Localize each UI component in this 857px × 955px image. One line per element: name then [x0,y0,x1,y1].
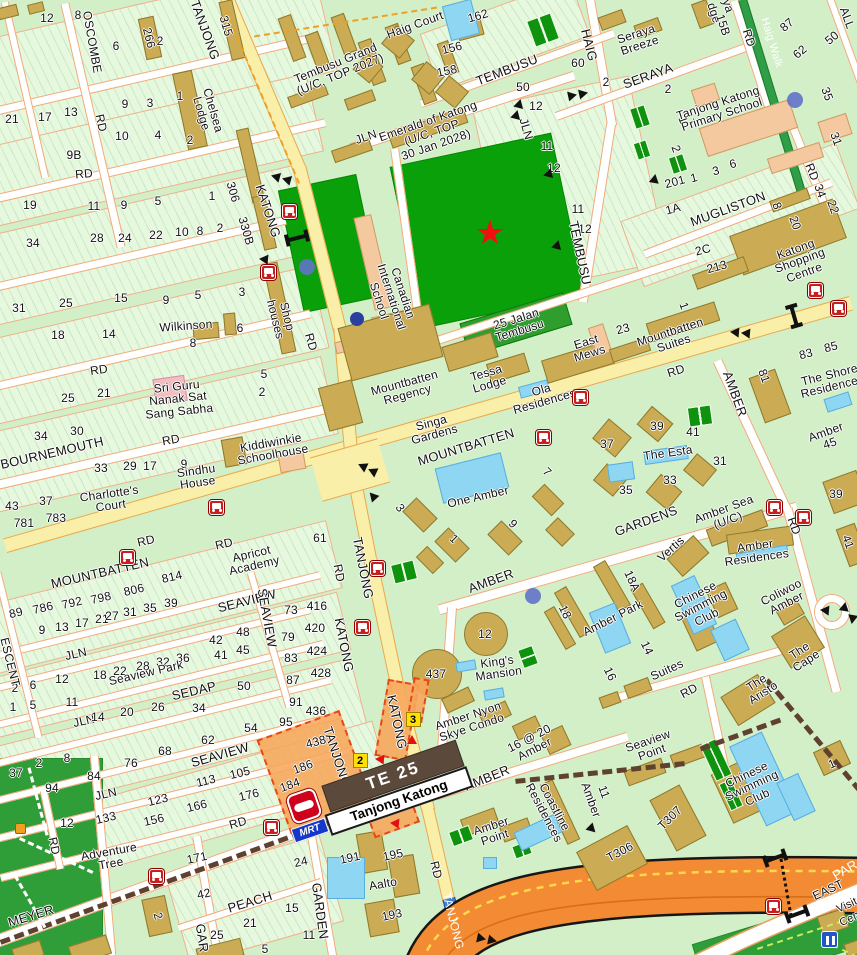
map-label: HAIG [579,28,600,63]
school-building [698,99,798,157]
building [141,895,172,937]
map-label: Charlotte's Court [79,484,141,517]
map-label: 9 [122,98,129,110]
map-label: 37 [9,767,23,779]
bus-stop-icon[interactable] [808,283,823,298]
building [305,31,332,73]
one-way-arrow-icon [551,234,564,250]
building [667,535,710,577]
map-label: 11 [541,140,554,152]
building [545,517,575,547]
map-label: 171 [186,850,209,866]
building [609,337,651,363]
building [836,523,857,567]
mrt-exit-badge[interactable]: 3 [406,712,421,727]
dashed-line [779,859,792,917]
building [278,14,307,62]
map-label: SEAVIEW [216,587,277,615]
map-label: RD [803,161,821,182]
map-label: 22 [113,665,127,677]
map-label: 133 [95,810,118,827]
building [540,725,571,755]
map-label: SEDAP [171,679,218,702]
map-label: 83 [284,652,298,664]
building [344,89,376,111]
map-label: 12 [529,100,543,112]
map-label: 31 [123,606,137,618]
map-label: 11 [303,929,316,941]
map-label: 428 [311,667,332,679]
map-label: Amber [579,781,603,819]
map-label: 17 [38,111,52,123]
map-label: JLN [94,785,118,802]
map-label: 3 [711,164,721,178]
map-label: ALL [837,6,856,31]
map-label: 91 [289,696,303,708]
map-label: 12 [578,223,592,235]
map-label: 11 [572,203,585,215]
map-label: RD [161,432,181,447]
map-label: 34 [26,237,40,249]
map-label: OSCOMBE [80,10,103,74]
mrt-exit-badge[interactable]: 2 [353,753,368,768]
map-label: ESCENT [0,636,22,687]
map-label: RD [89,363,108,378]
map-label: 2 [36,757,43,769]
one-way-arrow-icon [385,817,400,828]
map-label: 1 [676,115,690,126]
map-label: 3 [239,286,246,298]
building [388,854,421,898]
swimming-pool [589,602,631,653]
map-label: 42 [196,886,212,901]
map-label: 156 [143,812,166,829]
temple-building [152,375,187,405]
map-label: 416 [307,600,328,612]
swimming-pool [643,445,689,465]
map-label: 806 [123,582,146,599]
building [630,583,665,630]
map-label: 6 [728,157,738,171]
map-label: 37 [39,495,53,507]
map-label: 34 [192,702,206,714]
one-way-arrow-icon [254,253,269,264]
map-label: 14 [91,711,105,723]
one-way-arrow-icon [586,823,603,840]
map-label: 32 [156,656,170,668]
map-label: SEAVIEW [255,587,279,648]
playground-icon [15,823,26,834]
building [402,497,437,532]
map-label: 31 [12,302,26,314]
building [192,322,219,340]
map-label: 28 [90,232,104,244]
map-label: 9 [121,199,128,211]
map-label: 33 [94,462,108,474]
map-label: RD [136,533,156,549]
bus-stop-icon[interactable] [355,620,370,635]
map-label: 23 [615,321,632,337]
map-label: 11 [88,200,101,212]
map-label: 13 [64,106,78,118]
map-label: KATONG [332,617,356,673]
map-label: 12 [60,817,74,829]
map-label: RD [303,332,320,352]
map-label: 29 [123,460,137,472]
map-label: 24 [118,232,132,244]
map-label: 9B [66,149,81,161]
map-label: GARDENS [613,503,679,538]
bus-stop-icon[interactable] [120,550,135,565]
building [597,9,626,31]
swimming-pool [823,391,852,412]
bus-stop-icon[interactable] [264,820,279,835]
map-label: 20 [120,706,134,718]
map-label: 25 Jalan Tembusu [490,306,545,344]
map-label: 5 [30,699,37,711]
one-way-arrow-icon [543,162,556,178]
swimming-pool [483,687,504,700]
map-label: 798 [90,590,113,607]
map-label: SERAYA [621,61,675,91]
sports-court [687,404,714,427]
map-label: 15B [714,13,733,38]
building [646,474,683,510]
building [749,369,792,424]
map-label: 14 [638,639,655,657]
map-label: 105 [228,764,251,781]
map-label: 36 [176,652,190,664]
map-label: 12 [40,12,54,24]
map-label: 330B [236,215,256,246]
map-label: 201 [663,173,686,190]
map-canvas[interactable]: TE 25 Tanjong Katong MRT 12862OSCOMBERD2… [0,0,857,955]
building [317,379,362,432]
map-label: 27 [105,610,119,622]
swimming-pool [671,575,717,635]
bus-stop-icon[interactable] [149,869,164,884]
map-label: 35 [143,602,157,614]
sports-court [526,12,560,47]
bus-stop-icon[interactable] [370,561,385,576]
map-label: 792 [61,595,84,612]
map-label: 21 [97,387,111,399]
building [592,418,632,457]
school-building [354,214,393,311]
map-label: 11 [596,784,612,800]
map-label: 176 [237,786,260,803]
map-label: 420 [305,622,326,634]
bus-stop-icon[interactable] [536,430,551,445]
map-label: MOUNTBATTEN [50,555,151,591]
dashed-line [14,875,47,928]
building [646,301,721,342]
map-label: 21 [95,613,109,625]
map-label: EAST [811,878,845,903]
map-label: 89 [8,605,24,620]
bus-stop-icon[interactable] [261,265,276,280]
building [623,677,652,699]
map-label: RD [666,362,687,379]
map-label: 1 [689,171,699,185]
building [623,758,666,787]
bus-stop-icon[interactable] [796,510,811,525]
map-label: 22 [149,229,163,241]
map-label: 73 [284,604,298,616]
map-label: 306 [224,180,242,203]
map-label: 31 [713,455,727,467]
map-label: 25 [59,297,73,309]
map-label: 17 [75,617,89,629]
map-label: 87 [286,674,300,686]
building [251,194,276,251]
map-label: 9 [163,294,170,306]
map-label: 62 [201,734,215,746]
bus-stop-icon[interactable] [282,204,297,219]
map-label: 10 [175,226,189,238]
map-label: 21 [5,113,19,125]
map-label: 50 [237,680,251,692]
map-label: 2 [603,76,610,88]
map-label: King's Mansion [473,652,523,683]
overpass-icon [789,305,799,327]
map-label: PAR [830,858,857,883]
map-label: 1 [10,701,17,713]
map-label: TEMBUSU [567,220,594,286]
map-label: RD [75,167,94,181]
map-label: 5 [262,943,269,955]
map-label: 24 [293,854,309,869]
building [416,546,444,574]
school-building [278,451,307,473]
carpark-icon[interactable] [525,588,541,604]
dashed-line [27,767,48,835]
map-label: 15 [114,292,128,304]
sports-court [629,104,651,130]
map-label: 43 [5,500,19,512]
map-label: 87 [778,16,797,34]
swimming-pool [435,452,510,503]
map-label: Suites [649,657,686,682]
map-label: JLN [517,117,535,142]
map-label: 41 [214,649,228,661]
map-label: 2 [259,386,266,398]
map-label: 5 [155,195,162,207]
one-way-arrow-icon [846,614,857,630]
map-label: TEMBUSU [474,52,539,88]
dashed-line [11,833,94,874]
map-label: 94 [45,782,59,794]
map-label: 76 [124,757,138,769]
map-label: 3 [147,97,154,109]
map-label: SEAVIEW [189,740,250,769]
map-label: 6 [113,40,120,52]
building [235,127,265,203]
map-label: 54 [244,722,258,734]
building [512,715,542,740]
map-label: 14 [102,328,116,340]
building [0,4,19,20]
map-label: 21 [243,917,257,929]
map-label: 6 [237,322,244,334]
building [138,16,162,60]
building [599,691,622,709]
map-label: 62 [791,43,810,61]
one-way-arrow-icon [815,604,830,615]
carpark-icon[interactable] [299,259,315,275]
map-label: 8 [75,9,82,21]
map-label: Amber 45 [807,420,850,456]
map-label: Singa Gardens [407,411,459,447]
building [388,107,469,148]
one-way-arrow-icon [407,730,417,744]
map-label: 9 [181,458,188,470]
building [691,256,748,290]
map-label: Mountbatten Regency [369,368,442,410]
building [221,436,248,467]
one-way-arrow-icon [276,172,292,185]
map-label: 18 [93,669,107,681]
map-label: 5 [261,368,268,380]
building [68,934,112,955]
map-label: 1A [664,201,682,217]
map-label: 35 [819,85,835,102]
building [437,40,460,76]
building [532,484,565,517]
one-way-arrow-icon [736,327,751,338]
building [649,784,706,851]
map-label: Apricot Academy [225,542,281,578]
bus-stop-icon[interactable] [767,500,782,515]
map-label: 10 [115,130,129,142]
swimming-pool [518,379,550,398]
map-label: 17 [143,460,157,472]
map-label: 786 [32,600,55,617]
school-building [766,142,823,174]
one-way-arrow-icon [476,932,492,945]
school-building [817,113,852,143]
sports-court [668,153,689,175]
building [196,938,245,955]
building [576,825,648,891]
one-way-arrow-icon [567,89,583,102]
map-label: 34 [34,430,48,442]
carpark-icon[interactable] [787,92,803,108]
map-label: 60 [571,57,585,69]
map-label: 8 [197,225,204,237]
one-way-arrow-icon [370,753,385,764]
map-label: 5 [195,289,202,301]
building [331,137,373,162]
building [822,470,857,514]
building [11,940,44,955]
map-label: 79 [281,631,295,643]
bus-stop-icon[interactable] [573,390,588,405]
map-label: ya [720,0,736,14]
building [637,406,674,442]
map-label: Sindhu House [176,462,218,492]
sports-court [633,139,652,160]
map-label: 25 [210,929,224,941]
map-label: 8 [64,752,71,764]
map-label: 783 [46,512,67,524]
map-label: 11 [66,696,79,708]
building [223,313,237,336]
map-label: 2 [217,222,224,234]
swimming-pool [455,659,476,672]
building [364,899,399,938]
map-label: 61 [313,532,327,544]
map-label: 68 [158,745,172,757]
map-label: 814 [161,569,184,586]
building [172,70,208,150]
map-label: 45 [236,644,250,656]
map-label: RD [214,536,234,552]
map-label: AMBER [466,567,515,596]
sports-court [517,645,539,669]
map-label: 2 [12,682,19,694]
map-label: 28 [136,660,150,672]
map-label: RD [428,860,444,880]
swimming-pool [710,619,750,662]
info-point-icon[interactable] [350,312,364,326]
map-label: BOURNEMOUTH [0,435,105,472]
map-label: 166 [185,797,208,814]
map-label: 83 [798,346,814,361]
map-label: 424 [307,645,328,657]
map-label: 2C [694,242,712,258]
overpass-icon [286,233,308,242]
map-label: 18 [51,329,65,341]
map-label: RD [331,563,347,583]
swimming-pool [483,857,497,869]
map-label: 12 [55,673,69,685]
building [633,17,662,39]
bus-stop-icon[interactable] [831,301,846,316]
map-label: 9 [39,624,46,636]
toilet-icon[interactable] [821,931,838,948]
one-way-arrow-icon [362,462,379,477]
swimming-pool [327,857,365,899]
map-label: JLN [64,645,88,662]
map-label: 1 [209,190,216,202]
map-label: 85 [823,339,839,354]
building [27,1,45,15]
map-label: 16 [601,665,618,683]
map-label: PEACH [226,889,274,915]
bus-stop-icon[interactable] [209,500,224,515]
map-label: RD [228,815,248,832]
one-way-arrow-icon [510,104,523,120]
map-label: AMBER [721,369,750,418]
map-label: 781 [14,517,35,529]
map-label: Seaview Park [108,658,185,687]
map-label: 7 [540,465,554,479]
sports-court [448,825,474,848]
building [287,84,329,109]
map-label: Haig Walk [758,17,784,70]
map-label: TANJONG [188,0,222,62]
map-label: 2 [665,83,672,95]
map-label: 123 [146,791,169,808]
map-label: 19 [23,199,37,211]
one-way-arrow-icon [363,485,380,502]
map-label: 4 [155,129,162,141]
map-label: 15 [285,902,299,914]
bus-stop-icon[interactable] [766,899,781,914]
location-star-marker [476,220,504,247]
swimming-pool [607,461,635,482]
